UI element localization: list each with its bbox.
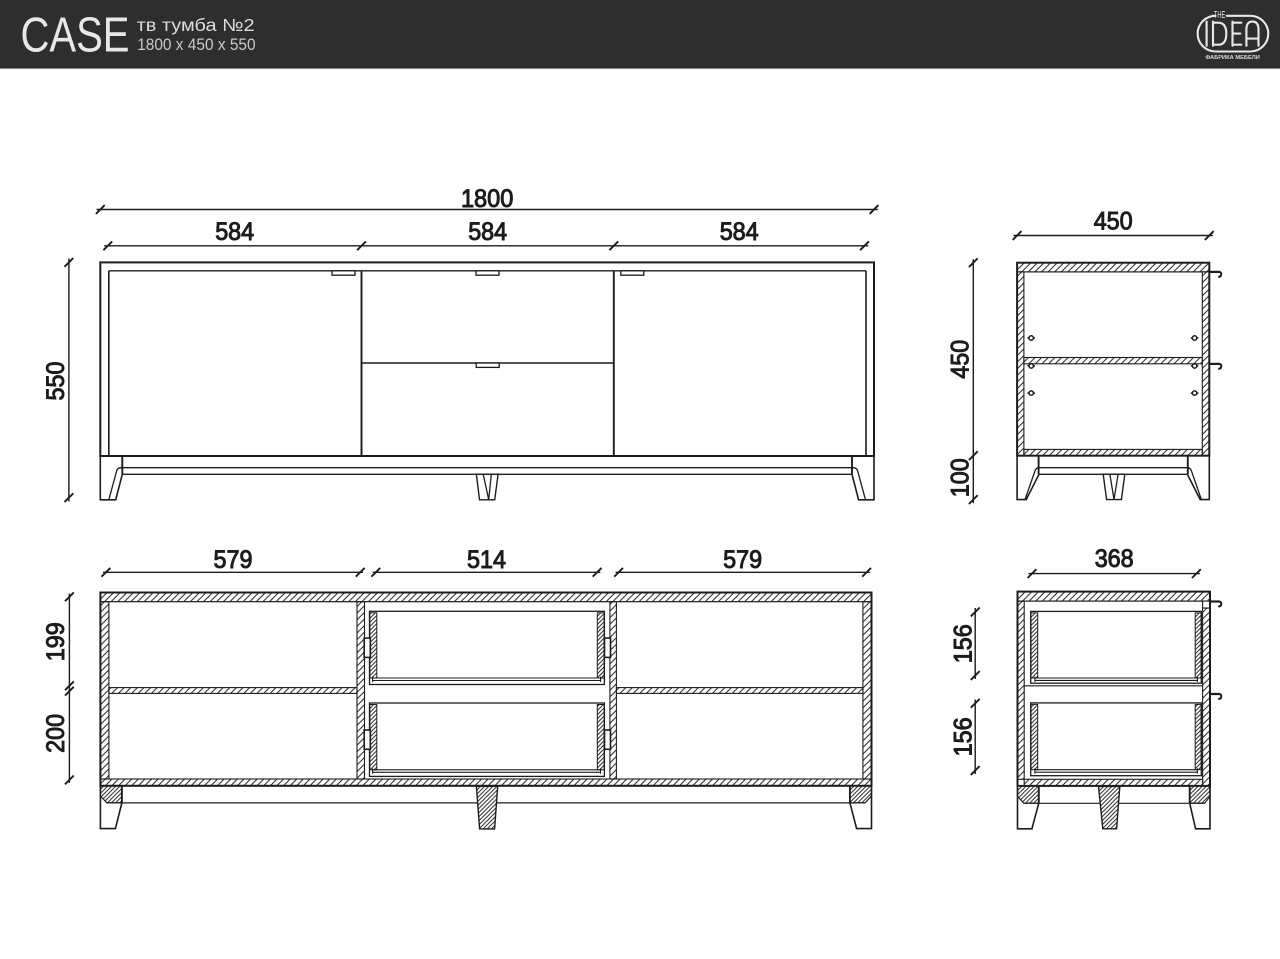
svg-text:156: 156 bbox=[949, 624, 977, 663]
svg-text:579: 579 bbox=[723, 546, 762, 574]
svg-text:200: 200 bbox=[42, 714, 70, 753]
svg-text:450: 450 bbox=[946, 340, 974, 379]
svg-text:450: 450 bbox=[1094, 208, 1133, 236]
svg-text:584: 584 bbox=[720, 218, 759, 246]
svg-text:CASE: CASE bbox=[21, 9, 130, 63]
svg-text:1800: 1800 bbox=[461, 185, 514, 213]
svg-text:368: 368 bbox=[1095, 545, 1134, 573]
svg-text:550: 550 bbox=[42, 362, 70, 401]
svg-text:514: 514 bbox=[467, 546, 506, 574]
svg-text:1800 x 450 x 550: 1800 x 450 x 550 bbox=[137, 36, 255, 54]
svg-text:тв тумба №2: тв тумба №2 bbox=[137, 15, 255, 35]
svg-text:THE: THE bbox=[1214, 10, 1226, 21]
svg-text:156: 156 bbox=[949, 717, 977, 756]
svg-text:584: 584 bbox=[215, 218, 254, 246]
svg-text:199: 199 bbox=[42, 622, 70, 661]
svg-text:100: 100 bbox=[946, 458, 974, 497]
svg-text:584: 584 bbox=[468, 218, 507, 246]
svg-text:ФАБРИКА МЕБЕЛИ: ФАБРИКА МЕБЕЛИ bbox=[1205, 55, 1260, 61]
svg-text:579: 579 bbox=[214, 546, 253, 574]
